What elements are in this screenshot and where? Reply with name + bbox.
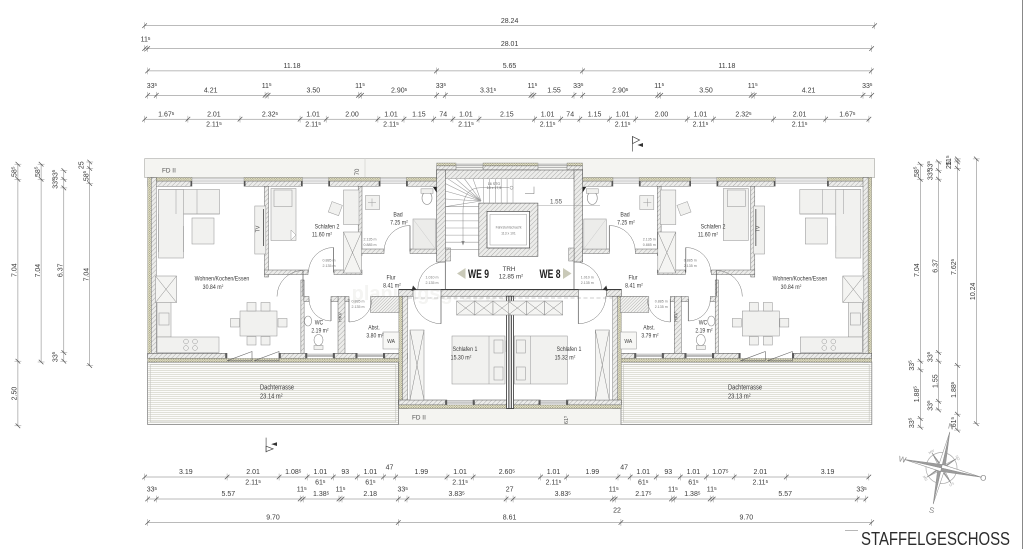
svg-text:6.37: 6.37 — [932, 259, 939, 273]
svg-text:Bad: Bad — [620, 212, 629, 219]
svg-text:9.70: 9.70 — [266, 515, 280, 522]
svg-text:1.01: 1.01 — [636, 469, 650, 476]
svg-text:0.885 m: 0.885 m — [643, 243, 656, 247]
svg-text:WE 8: WE 8 — [540, 269, 561, 281]
svg-text:3.50: 3.50 — [699, 88, 713, 95]
svg-text:Schlafen 2: Schlafen 2 — [315, 224, 340, 231]
svg-text:Flur: Flur — [628, 275, 637, 282]
svg-text:1.01: 1.01 — [459, 111, 473, 118]
svg-text:Dachterrasse: Dachterrasse — [728, 384, 762, 392]
svg-text:113 x 101: 113 x 101 — [501, 232, 516, 236]
svg-text:28.24: 28.24 — [501, 18, 519, 25]
svg-text:2.135 m: 2.135 m — [364, 238, 377, 242]
svg-text:2.00: 2.00 — [345, 111, 359, 118]
svg-text:8.61: 8.61 — [503, 515, 517, 522]
svg-text:3.79 m2: 3.79 m2 — [641, 332, 658, 339]
svg-text:4.21: 4.21 — [802, 88, 816, 95]
svg-text:1.01: 1.01 — [616, 111, 630, 118]
svg-text:25: 25 — [946, 161, 953, 169]
svg-text:Fahrstuhlschacht: Fahrstuhlschacht — [496, 226, 522, 230]
svg-text:4.21: 4.21 — [204, 88, 218, 95]
svg-text:2.01: 2.01 — [246, 469, 260, 476]
svg-text:Abst.: Abst. — [368, 325, 380, 332]
svg-text:WE 9: WE 9 — [468, 269, 489, 281]
svg-text:8.41 m2: 8.41 m2 — [383, 282, 401, 289]
svg-text:74: 74 — [439, 111, 447, 118]
svg-text:2.18: 2.18 — [363, 491, 377, 498]
svg-text:11.60 m2: 11.60 m2 — [698, 231, 718, 238]
svg-text:0.885 m: 0.885 m — [352, 300, 365, 304]
svg-text:18 x 17,5: 18 x 17,5 — [487, 186, 502, 190]
svg-text:22: 22 — [613, 508, 621, 515]
svg-text:47: 47 — [620, 465, 628, 472]
svg-text:3.19: 3.19 — [179, 469, 193, 476]
svg-text:1.99: 1.99 — [414, 469, 428, 476]
svg-text:0.885 m: 0.885 m — [684, 259, 697, 263]
svg-text:HKV: HKV — [338, 311, 343, 321]
svg-text:74: 74 — [566, 111, 574, 118]
svg-text:1.01: 1.01 — [306, 111, 320, 118]
svg-text:1.01: 1.01 — [364, 469, 378, 476]
svg-text:30.84 m2: 30.84 m2 — [203, 284, 224, 291]
svg-text:25: 25 — [79, 161, 86, 169]
svg-text:1.010 m: 1.010 m — [581, 276, 594, 280]
svg-text:15.32 m2: 15.32 m2 — [555, 354, 576, 361]
svg-text:TRH: TRH — [503, 266, 516, 273]
svg-text:7.25 m2: 7.25 m2 — [390, 219, 408, 226]
svg-text:WA: WA — [387, 339, 396, 345]
svg-text:1.15: 1.15 — [412, 111, 426, 118]
svg-text:Schlafen 1: Schlafen 1 — [453, 347, 478, 354]
svg-text:0.885 m: 0.885 m — [364, 243, 377, 247]
svg-text:WC: WC — [315, 320, 323, 327]
svg-text:23.14 m2: 23.14 m2 — [260, 393, 283, 401]
svg-text:1.01: 1.01 — [453, 469, 467, 476]
svg-text:5.57: 5.57 — [221, 491, 235, 498]
svg-text:1.01: 1.01 — [541, 111, 555, 118]
svg-text:2.01: 2.01 — [207, 111, 221, 118]
svg-text:WA: WA — [624, 339, 633, 345]
svg-text:5.57: 5.57 — [778, 491, 792, 498]
svg-text:TV: TV — [256, 225, 262, 232]
svg-text:6.37: 6.37 — [58, 263, 65, 277]
svg-text:7.25 m2: 7.25 m2 — [617, 219, 635, 226]
svg-text:47: 47 — [386, 465, 394, 472]
svg-text:3.19: 3.19 — [821, 469, 835, 476]
svg-text:2.135 m: 2.135 m — [352, 305, 365, 309]
svg-text:1.55: 1.55 — [547, 88, 561, 95]
svg-text:11.60 m2: 11.60 m2 — [312, 231, 332, 238]
svg-text:7.04: 7.04 — [84, 268, 91, 282]
svg-text:93: 93 — [664, 469, 672, 476]
svg-text:FD II: FD II — [162, 168, 176, 175]
svg-text:Schlafen 2: Schlafen 2 — [701, 224, 726, 231]
svg-text:Flur: Flur — [386, 275, 395, 282]
svg-text:2.135 m: 2.135 m — [684, 264, 697, 268]
svg-text:11.18: 11.18 — [718, 63, 735, 70]
svg-text:2.50: 2.50 — [12, 387, 19, 401]
svg-text:1.55: 1.55 — [550, 199, 563, 206]
svg-text:12.85 m2: 12.85 m2 — [499, 274, 523, 281]
svg-text:Wohnen/Kochen/Essen: Wohnen/Kochen/Essen — [195, 276, 250, 283]
svg-text:1.55: 1.55 — [932, 374, 939, 388]
svg-text:1.01: 1.01 — [384, 111, 398, 118]
svg-text:FD II: FD II — [412, 415, 426, 422]
svg-text:1.15: 1.15 — [588, 111, 602, 118]
svg-text:1.01: 1.01 — [687, 469, 701, 476]
svg-text:1.99: 1.99 — [585, 469, 599, 476]
svg-text:2.15: 2.15 — [500, 111, 514, 118]
svg-text:0.885 m: 0.885 m — [323, 259, 336, 263]
svg-text:23.13 m2: 23.13 m2 — [728, 393, 751, 401]
svg-text:Dachterrasse: Dachterrasse — [260, 384, 294, 392]
svg-text:Schlafen 1: Schlafen 1 — [557, 347, 582, 354]
svg-text:28.01: 28.01 — [501, 41, 519, 48]
svg-text:2.135 m: 2.135 m — [323, 264, 336, 268]
svg-text:HKV: HKV — [674, 311, 679, 321]
svg-text:WC: WC — [699, 320, 707, 327]
svg-text:7.04: 7.04 — [35, 264, 42, 278]
svg-text:2.19 m2: 2.19 m2 — [311, 327, 328, 334]
svg-text:1.01: 1.01 — [694, 111, 708, 118]
svg-text:93: 93 — [341, 469, 349, 476]
svg-text:Wohnen/Kochen/Essen: Wohnen/Kochen/Essen — [773, 276, 828, 283]
svg-text:16 STG: 16 STG — [488, 182, 501, 186]
svg-text:2.19 m2: 2.19 m2 — [695, 327, 712, 334]
svg-text:1.01: 1.01 — [313, 469, 327, 476]
svg-text:1.01: 1.01 — [547, 469, 561, 476]
svg-text:2.135 m: 2.135 m — [426, 281, 439, 285]
svg-text:27: 27 — [506, 487, 514, 494]
svg-text:70: 70 — [355, 168, 361, 175]
svg-text:15.30 m2: 15.30 m2 — [451, 354, 472, 361]
svg-text:2.135 m: 2.135 m — [643, 238, 656, 242]
svg-text:7.04: 7.04 — [914, 263, 921, 277]
svg-text:5.65: 5.65 — [503, 63, 517, 70]
svg-text:8.41 m2: 8.41 m2 — [625, 282, 643, 289]
svg-text:11.18: 11.18 — [284, 63, 301, 70]
svg-text:TV: TV — [756, 225, 762, 232]
svg-text:10.24: 10.24 — [970, 282, 977, 300]
svg-text:7.04: 7.04 — [12, 263, 19, 277]
svg-text:Abst.: Abst. — [643, 325, 655, 332]
svg-text:3.80 m2: 3.80 m2 — [366, 332, 383, 339]
svg-text:2.135 m: 2.135 m — [581, 281, 594, 285]
svg-text:Bad: Bad — [393, 212, 402, 219]
svg-text:3.50: 3.50 — [306, 88, 320, 95]
svg-text:9.70: 9.70 — [739, 515, 753, 522]
svg-text:2.00: 2.00 — [655, 111, 669, 118]
svg-text:STAFFELGESCHOSS: STAFFELGESCHOSS — [861, 528, 1010, 549]
svg-text:1.010 m: 1.010 m — [426, 276, 439, 280]
svg-text:2.135 m: 2.135 m — [655, 305, 668, 309]
svg-text:0.885 m: 0.885 m — [655, 300, 668, 304]
svg-text:2.01: 2.01 — [753, 469, 767, 476]
svg-text:30.84 m2: 30.84 m2 — [781, 284, 802, 291]
svg-text:2.01: 2.01 — [793, 111, 807, 118]
